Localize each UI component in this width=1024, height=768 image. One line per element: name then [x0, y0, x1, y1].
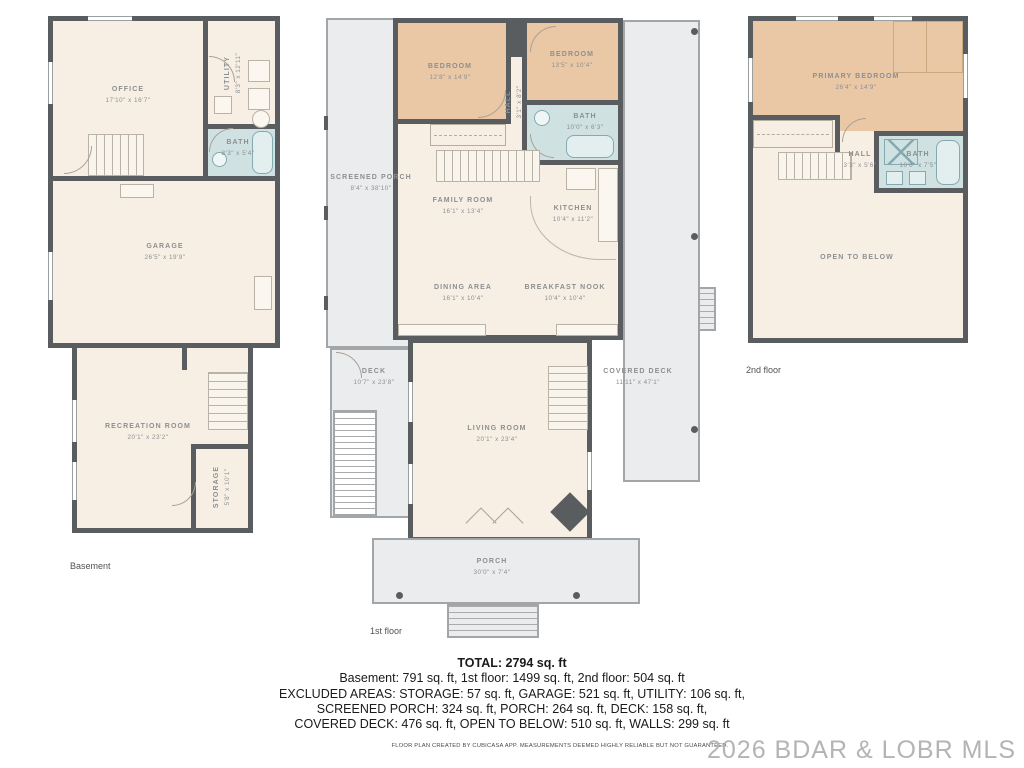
- room-label-storage: STORAGE 5'8" x 10'1": [212, 412, 232, 562]
- basement-upper-block: [48, 16, 280, 348]
- appliance: [248, 60, 270, 82]
- covered-deck-area: [623, 20, 700, 482]
- post: [396, 592, 403, 599]
- deck-stairs: [333, 410, 377, 516]
- room-label-bath2: BATH 10'6" x 7'5": [843, 150, 993, 170]
- sink: [909, 171, 926, 185]
- room-label-living: LIVING ROOM 20'1" x 23'4": [422, 424, 572, 444]
- summary-excluded-2: SCREENED PORCH: 324 sq. ft, PORCH: 264 s…: [0, 702, 1024, 717]
- room-label-hall1: HALL 3'1" x 8'2": [504, 27, 524, 177]
- closet: [753, 120, 833, 148]
- area-summary: TOTAL: 2794 sq. ft Basement: 791 sq. ft,…: [0, 656, 1024, 732]
- post: [324, 296, 328, 310]
- summary-excluded-1: EXCLUDED AREAS: STORAGE: 57 sq. ft, GARA…: [0, 687, 1024, 702]
- garage-shelf: [120, 184, 154, 198]
- summary-excluded-3: COVERED DECK: 476 sq. ft, OPEN TO BELOW:…: [0, 717, 1024, 732]
- water-heater: [252, 110, 270, 128]
- stove: [566, 168, 596, 190]
- post: [691, 426, 698, 433]
- disclaimer-text: FLOOR PLAN CREATED BY CUBICASA APP. MEAS…: [391, 743, 728, 749]
- window-seat: [398, 324, 486, 336]
- room-label-garage: GARAGE 26'5" x 19'9": [90, 242, 240, 262]
- post: [691, 28, 698, 35]
- window: [72, 462, 77, 500]
- room-label-deck: DECK 10'7" x 23'8": [299, 367, 449, 387]
- summary-total: TOTAL: 2794 sq. ft: [0, 656, 1024, 671]
- window: [587, 452, 592, 490]
- deck-stairs: [698, 287, 716, 331]
- wall-segment: [835, 115, 840, 155]
- stairs: [88, 134, 144, 176]
- room-label-screened-porch: SCREENED PORCH 8'4" x 38'10": [296, 173, 446, 193]
- wall-segment: [874, 188, 963, 193]
- window: [796, 16, 838, 21]
- appliance: [248, 88, 270, 110]
- window: [748, 58, 753, 102]
- floor-label-second: 2nd floor: [746, 365, 781, 375]
- room-label-office: OFFICE 17'10" x 16'7": [53, 85, 203, 105]
- room-label-primary: PRIMARY BEDROOM 26'4" x 14'9": [781, 72, 931, 92]
- window: [408, 464, 413, 504]
- room-label-kitchen: KITCHEN 10'4" x 11'2": [498, 204, 648, 224]
- floor-label-basement: Basement: [70, 561, 111, 571]
- sink: [886, 171, 903, 185]
- summary-floors: Basement: 791 sq. ft, 1st floor: 1499 sq…: [0, 671, 1024, 686]
- room-label-utility: UTILITY 8'3" x 12'11": [223, 0, 243, 148]
- room-label-porch: PORCH 30'0" x 7'4": [417, 557, 567, 577]
- window: [408, 382, 413, 422]
- room-label-bath1: BATH 10'0" x 6'3": [510, 112, 660, 132]
- bathtub: [566, 135, 614, 158]
- room-label-recreation: RECREATION ROOM 20'1" x 23'2": [73, 422, 223, 442]
- room-label-breakfast: BREAKFAST NOOK 10'4" x 10'4": [490, 283, 640, 303]
- window: [48, 252, 53, 300]
- post: [324, 116, 328, 130]
- wall-segment: [53, 176, 275, 181]
- wardrobe-divider: [926, 21, 927, 73]
- closet: [430, 124, 506, 146]
- window-seat: [556, 324, 618, 336]
- wall-segment: [182, 348, 187, 370]
- room-label-covered-deck: COVERED DECK 11'11" x 47'1": [563, 367, 713, 387]
- room-label-basement-bath: BATH 8'3" x 5'4": [163, 138, 313, 158]
- window: [963, 54, 968, 98]
- garage-cabinet: [254, 276, 272, 310]
- stairs: [436, 150, 540, 182]
- window: [874, 16, 912, 21]
- floor-plan-sheet: OFFICE 17'10" x 16'7" UTILITY 8'3" x 12'…: [0, 0, 1024, 768]
- post: [691, 233, 698, 240]
- porch-steps: [447, 604, 539, 638]
- room-label-open-to-below: OPEN TO BELOW: [782, 253, 932, 264]
- floor-label-first: 1st floor: [370, 626, 402, 636]
- window: [88, 16, 132, 21]
- mls-watermark: 2026 BDAR & LOBR MLS: [707, 736, 1016, 765]
- post: [324, 206, 328, 220]
- post: [573, 592, 580, 599]
- wardrobe: [893, 21, 963, 73]
